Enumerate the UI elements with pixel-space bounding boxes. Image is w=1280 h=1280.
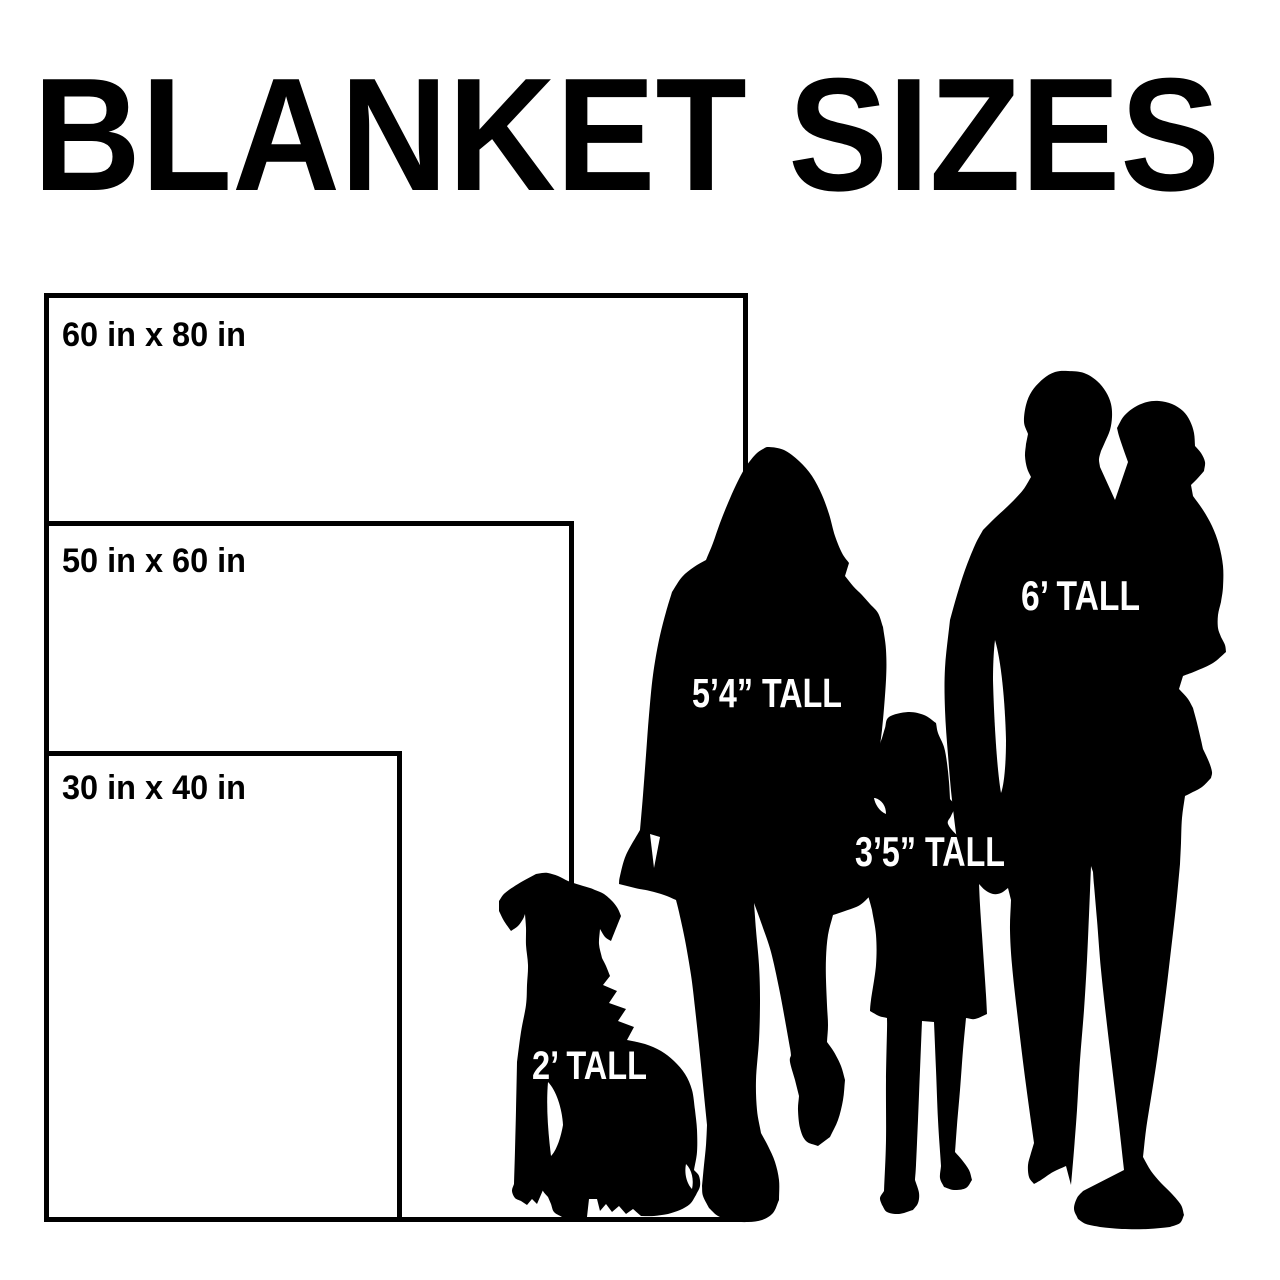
svg-text:3’5” TALL: 3’5” TALL [855,828,1005,875]
svg-text:6’ TALL: 6’ TALL [1021,572,1140,619]
svg-text:30 in x 40 in: 30 in x 40 in [62,769,246,807]
svg-text:50 in x 60 in: 50 in x 60 in [62,542,246,580]
svg-text:2’ TALL: 2’ TALL [532,1044,647,1088]
svg-text:60 in x 80 in: 60 in x 80 in [62,316,246,354]
svg-text:5’4” TALL: 5’4” TALL [692,670,842,716]
svg-text:BLANKET SIZES: BLANKET SIZES [33,45,1220,225]
